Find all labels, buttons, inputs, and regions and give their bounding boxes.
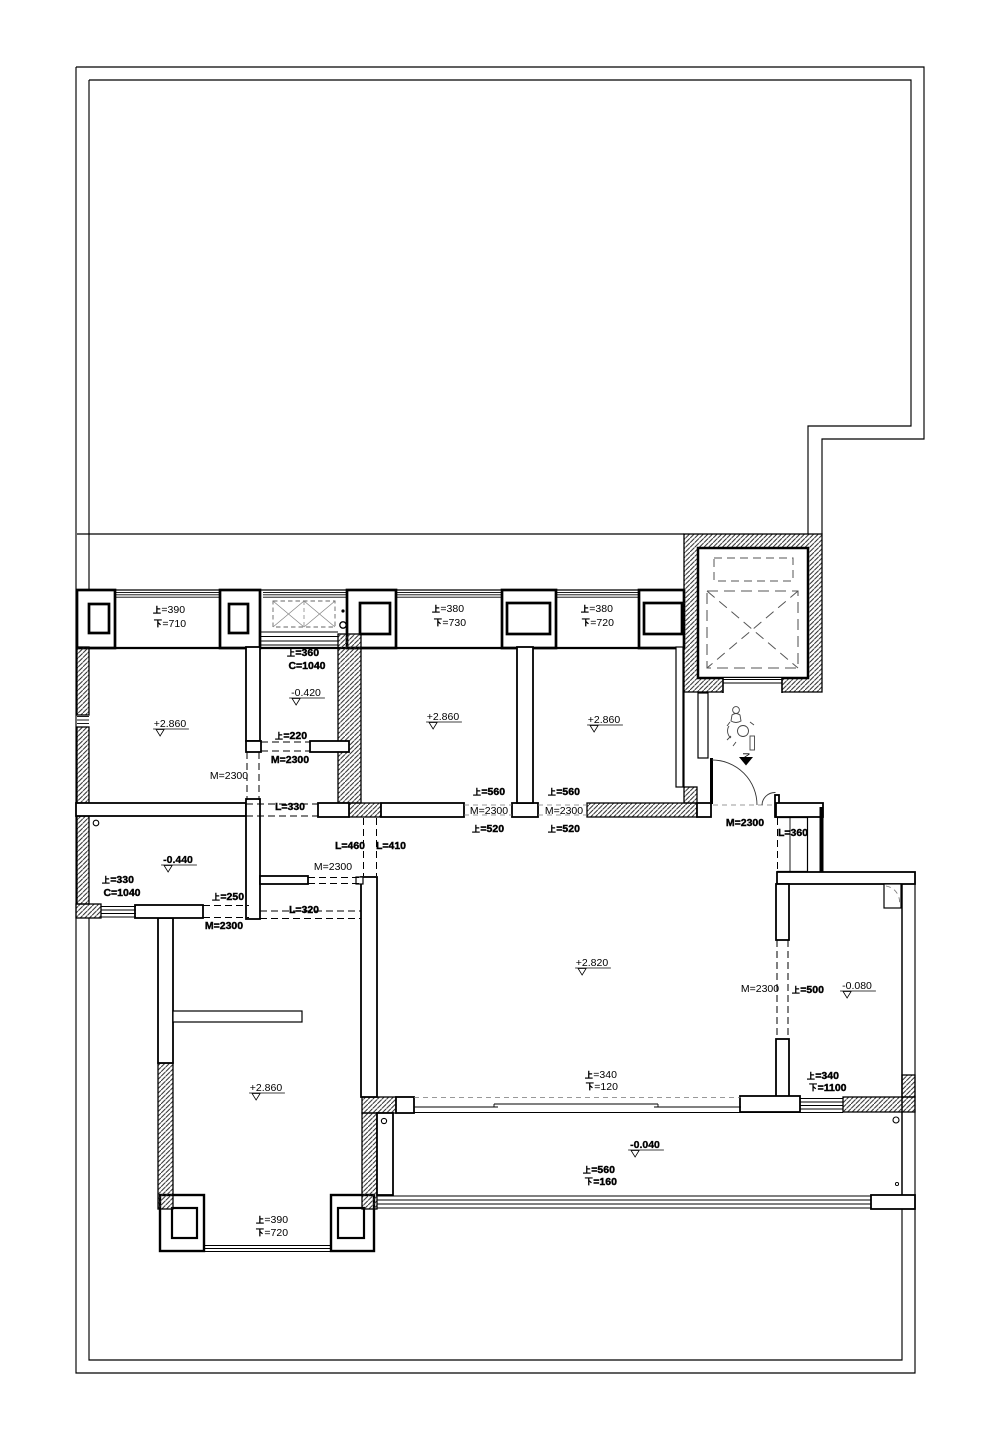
svg-text:=720: =720 (590, 617, 614, 629)
svg-text:=560: =560 (556, 786, 580, 798)
svg-text:=380: =380 (589, 603, 613, 615)
svg-text:M=2300: M=2300 (205, 920, 243, 932)
svg-text:M=2300: M=2300 (545, 805, 583, 817)
svg-text:+2.860: +2.860 (250, 1082, 283, 1094)
svg-text:=520: =520 (556, 823, 580, 835)
svg-text:-0.040: -0.040 (630, 1139, 660, 1151)
svg-text:=160: =160 (593, 1176, 617, 1188)
svg-text:M=2300: M=2300 (210, 770, 248, 782)
svg-text:=560: =560 (591, 1164, 615, 1176)
svg-text:=250: =250 (220, 891, 244, 903)
svg-text:=500: =500 (800, 984, 824, 996)
svg-text:M=2300: M=2300 (470, 805, 508, 817)
svg-text:=380: =380 (440, 603, 464, 615)
svg-text:=330: =330 (110, 874, 134, 886)
svg-text:L=320: L=320 (289, 904, 319, 916)
svg-text:L=460: L=460 (335, 840, 365, 852)
svg-text:=340: =340 (815, 1070, 839, 1082)
svg-text:=390: =390 (264, 1214, 288, 1226)
svg-text:=710: =710 (162, 618, 186, 630)
svg-text:M=2300: M=2300 (741, 983, 779, 995)
svg-text:-0.420: -0.420 (291, 687, 321, 699)
svg-text:+2.820: +2.820 (576, 957, 609, 969)
svg-text:=220: =220 (283, 730, 307, 742)
svg-text:+2.860: +2.860 (154, 718, 187, 730)
svg-text:=560: =560 (481, 786, 505, 798)
svg-text:M=2300: M=2300 (314, 861, 352, 873)
svg-text:L=410: L=410 (376, 840, 406, 852)
svg-text:M=2300: M=2300 (726, 817, 764, 829)
svg-text:L=360: L=360 (778, 827, 808, 839)
svg-text:=390: =390 (161, 604, 185, 616)
svg-text:L=330: L=330 (275, 801, 305, 813)
svg-text:=120: =120 (594, 1081, 618, 1093)
svg-text:=340: =340 (593, 1069, 617, 1081)
svg-text:M=2300: M=2300 (271, 754, 309, 766)
svg-text:=730: =730 (442, 617, 466, 629)
svg-text:=360: =360 (295, 647, 319, 659)
svg-text:=720: =720 (264, 1227, 288, 1239)
svg-text:=520: =520 (480, 823, 504, 835)
svg-text:+2.860: +2.860 (427, 711, 460, 723)
svg-text:C=1040: C=1040 (103, 887, 140, 899)
svg-text:=1100: =1100 (818, 1082, 847, 1094)
svg-text:C=1040: C=1040 (288, 660, 325, 672)
svg-text:-0.440: -0.440 (163, 854, 193, 866)
svg-text:+2.860: +2.860 (588, 714, 621, 726)
svg-text:-0.080: -0.080 (842, 980, 872, 992)
